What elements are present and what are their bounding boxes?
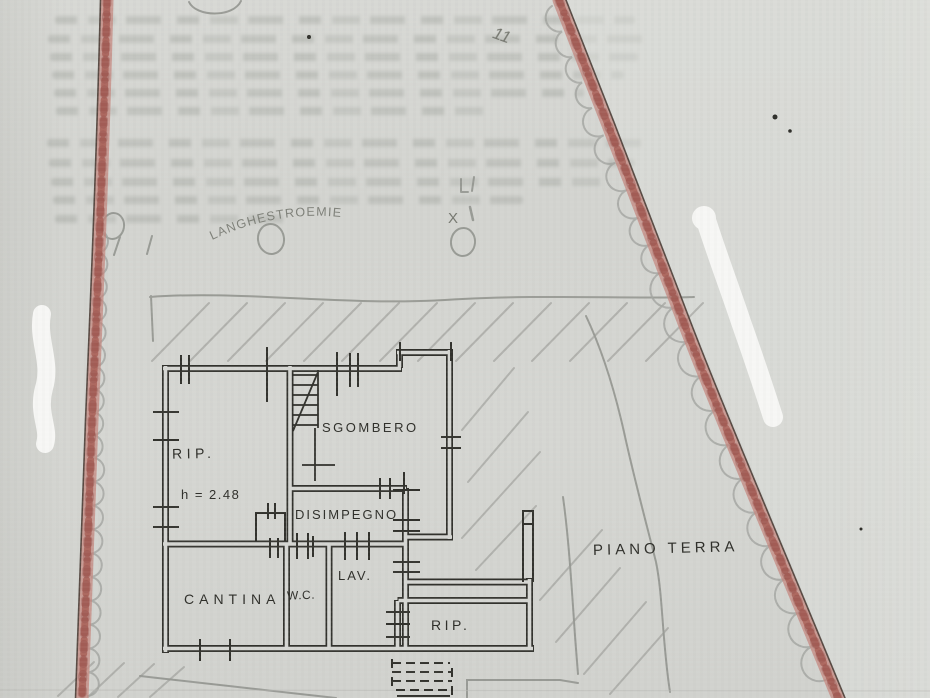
height-annotation: h = 2.48 bbox=[181, 487, 240, 502]
pencil-stroke-mark bbox=[470, 207, 473, 220]
room-label-rip-lower: RIP. bbox=[431, 617, 470, 633]
pencil-tail-marks bbox=[114, 236, 152, 255]
terrain-hatching bbox=[58, 303, 703, 697]
tree-circle-right bbox=[450, 227, 476, 257]
room-label-sgombero: SGOMBERO bbox=[322, 420, 419, 435]
pencil-top-arc bbox=[189, 1, 241, 14]
count-mark: 11 bbox=[490, 23, 513, 47]
exterior-steps-dashed bbox=[392, 663, 452, 690]
terrain-curve-inner bbox=[563, 497, 578, 674]
whiteout-blob bbox=[692, 206, 716, 230]
tree-circle-left bbox=[256, 222, 286, 255]
room-label-rip-upper: RIP. bbox=[172, 445, 216, 462]
room-label-lav: LAV. bbox=[338, 568, 372, 583]
pencil-step-line bbox=[467, 680, 578, 698]
terrain-curve-right bbox=[586, 316, 670, 692]
floor-label: PIANO TERRA bbox=[593, 538, 739, 559]
door-box bbox=[256, 513, 285, 542]
plant-name-label: LANGHESTROEMIE bbox=[207, 205, 342, 243]
terrain-top-line bbox=[150, 295, 694, 301]
room-label-cantina: CANTINA bbox=[184, 591, 280, 607]
pencil-check-marks bbox=[461, 177, 474, 192]
pillar bbox=[523, 511, 533, 582]
terrain-left-tick bbox=[151, 296, 153, 341]
room-label-disimpegno: DISIMPEGNO bbox=[295, 507, 398, 522]
floor-plan-drawing: 11 X LANGHESTROEMIE bbox=[0, 0, 930, 698]
room-label-wc: W.C. bbox=[287, 588, 315, 603]
paper-crease bbox=[0, 690, 930, 691]
x-mark: X bbox=[448, 210, 458, 227]
whiteout-streak-left bbox=[41, 314, 46, 444]
scanned-floor-plan-page: 11 X LANGHESTROEMIE bbox=[0, 0, 930, 698]
